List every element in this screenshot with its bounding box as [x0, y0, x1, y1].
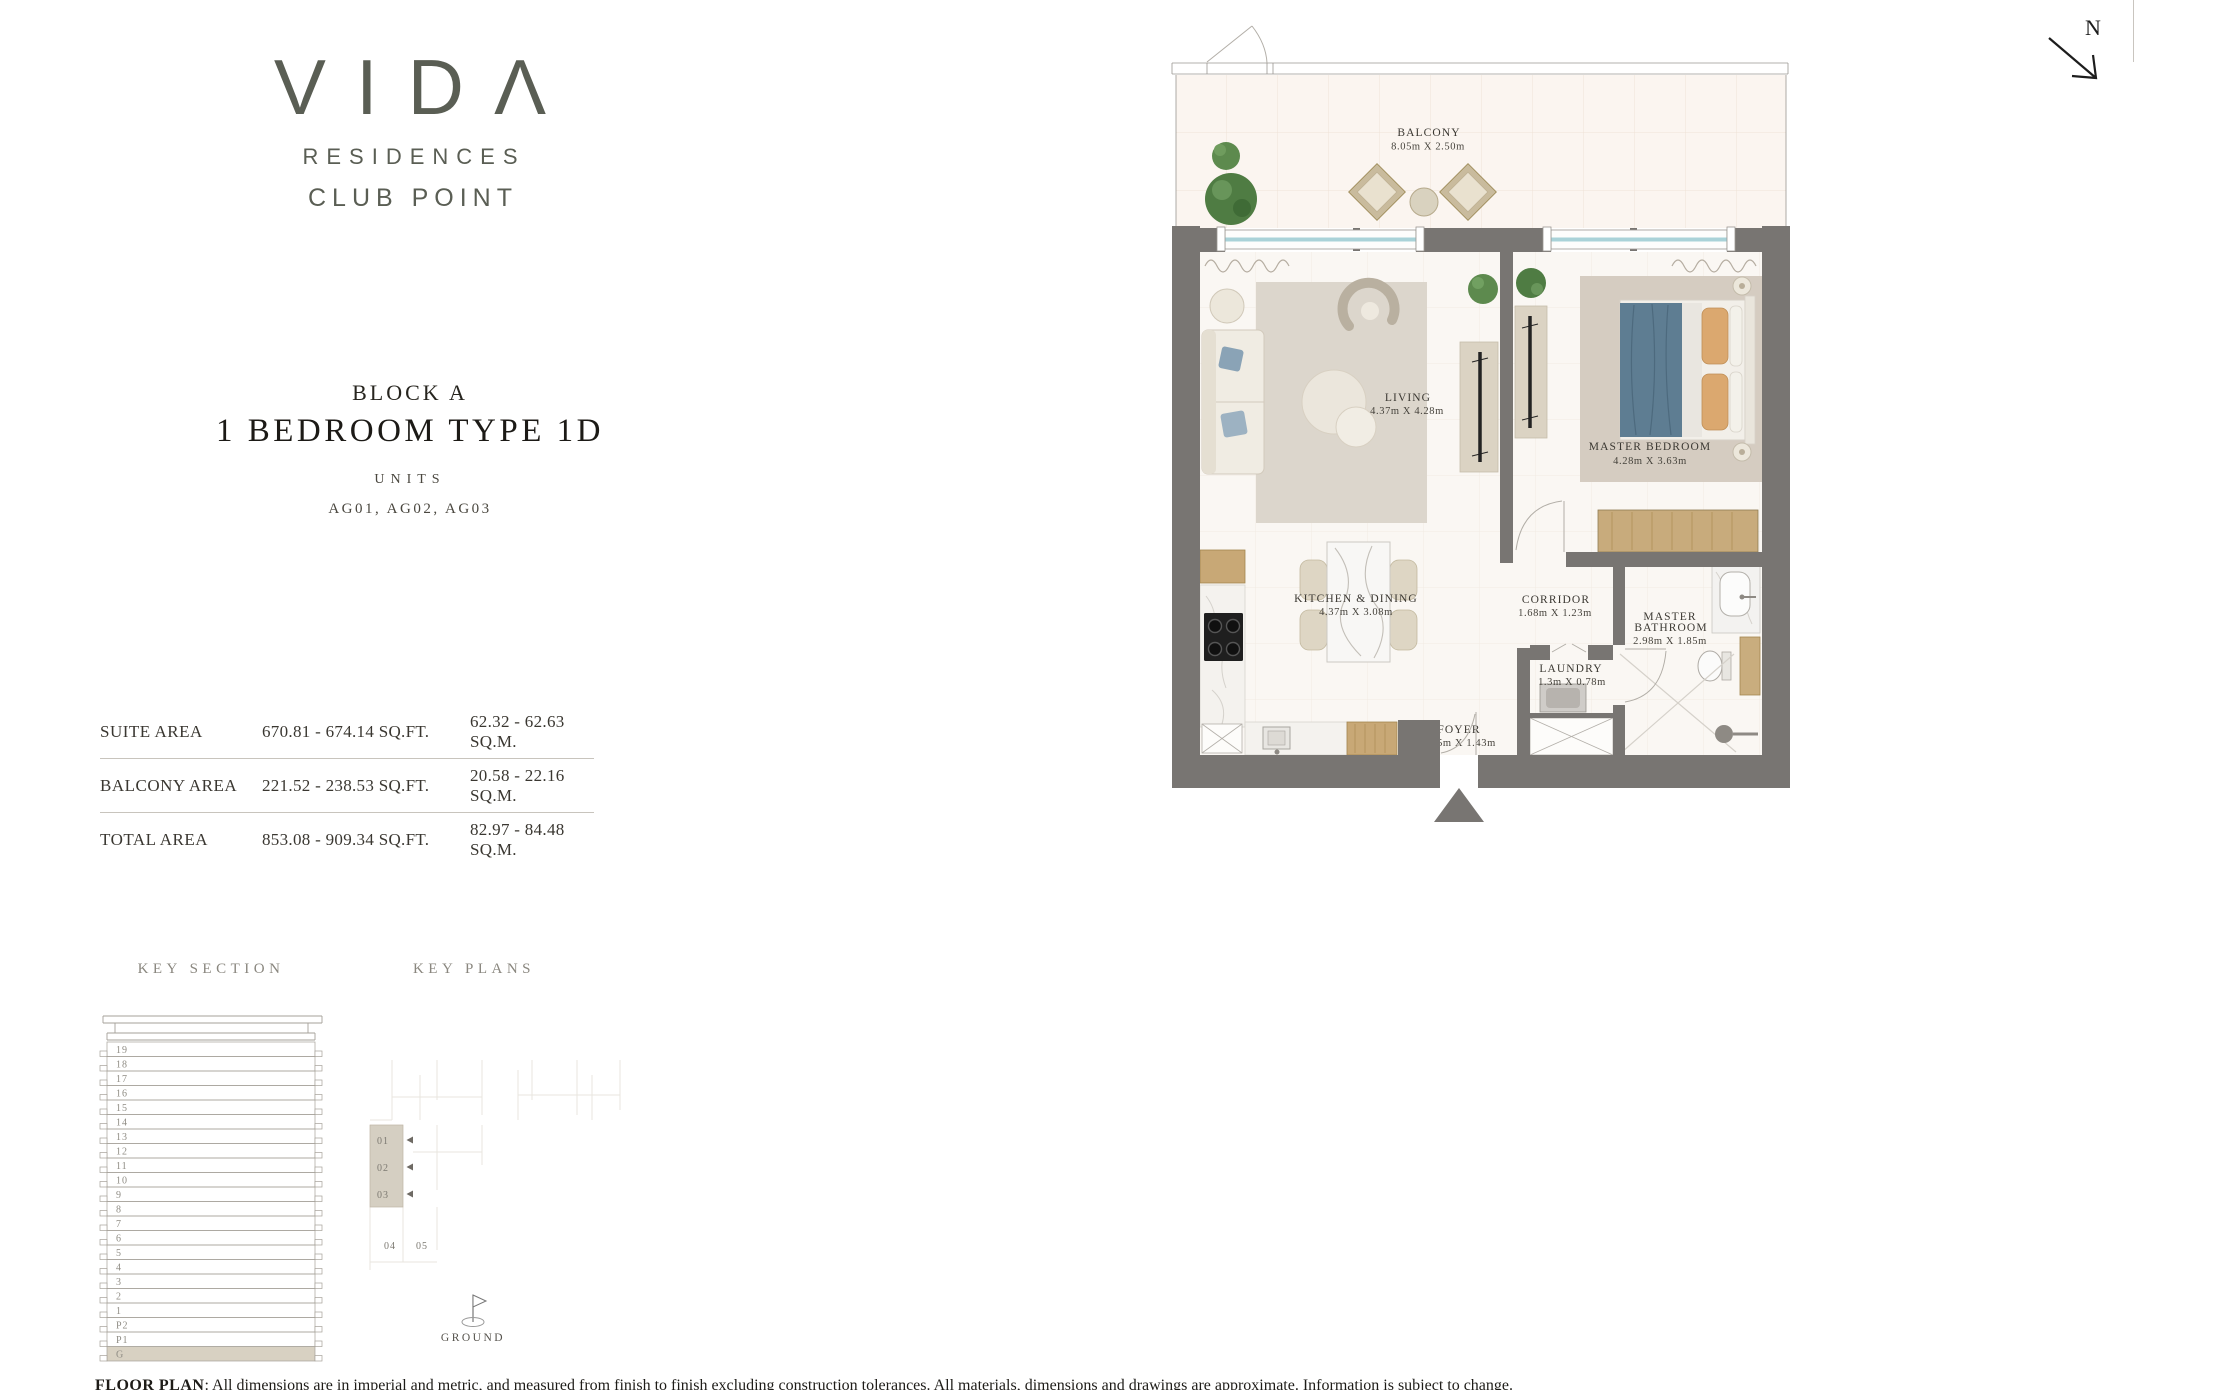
north-label: N [2085, 15, 2101, 40]
key-section-floor-marker [315, 1051, 322, 1057]
ground-flag-icon [462, 1295, 486, 1327]
room-dims-master-bathroom: 2.98m X 1.85m [1633, 636, 1707, 647]
key-section-floor-marker [315, 1211, 322, 1217]
key-section-floor-row [107, 1173, 315, 1188]
room-label-master-bedroom: MASTER BEDROOM [1589, 441, 1711, 453]
key-section-floor-label: 13 [116, 1132, 128, 1143]
key-section-floor-marker [100, 1182, 107, 1188]
key-section-floor-label: 18 [116, 1060, 128, 1071]
key-section-floor-marker [315, 1240, 322, 1246]
living-window [1217, 227, 1424, 251]
room-dims-master-bedroom: 4.28m X 3.63m [1613, 456, 1687, 467]
key-section-floor-marker [100, 1080, 107, 1086]
key-section-floor-label: 3 [116, 1277, 122, 1288]
room-label-foyer: FOYER [1437, 724, 1480, 736]
key-section-diagram: 19181716151413121110987654321P2P1G [100, 1016, 322, 1361]
room-label-balcony: BALCONY [1397, 127, 1460, 139]
key-section-floor-row [107, 1187, 315, 1202]
disclaimer-prefix: FLOOR PLAN [95, 1377, 204, 1390]
key-section-floor-marker [315, 1269, 322, 1275]
key-section-floor-row [107, 1158, 315, 1173]
bed [1620, 296, 1755, 444]
bathroom-wall-lower [1613, 705, 1625, 757]
key-section-floor-marker [100, 1196, 107, 1202]
key-plans-unit-05: 05 [416, 1241, 428, 1252]
kitchen-dining: KITCHEN & DINING 4.37m X 3.08m [1200, 542, 1418, 755]
storage-box [1530, 718, 1613, 755]
bed-throw [1620, 303, 1682, 437]
side-table [1210, 289, 1244, 323]
disclaimer: FLOOR PLAN: All dimensions are in imperi… [95, 1377, 2215, 1390]
accent-chair-cushion [1361, 302, 1379, 320]
bathroom-wall-upper [1613, 567, 1625, 645]
key-section-floor-row [107, 1303, 315, 1318]
key-section-floor-marker [315, 1109, 322, 1115]
key-section-floor-marker [315, 1341, 322, 1347]
bed-pillow [1702, 308, 1728, 364]
key-section-floor-marker [100, 1153, 107, 1159]
key-section-floor-row [107, 1216, 315, 1231]
key-section-floor-marker [315, 1312, 322, 1318]
key-section-floor-row [107, 1086, 315, 1101]
kitchen-cabinet [1200, 550, 1245, 583]
room-label-master-bathroom-2: BATHROOM [1634, 622, 1707, 634]
key-section-floor-marker [100, 1051, 107, 1057]
sofa-pillow [1220, 410, 1248, 438]
floor-plan-sheet: VIDΛ RESIDENCES CLUB POINT BLOCK A 1 BED… [0, 0, 2236, 1390]
key-section-floor-label: 8 [116, 1205, 122, 1216]
balcony-railing [1172, 63, 1788, 74]
room-dims-kitchen-dining: 4.37m X 3.08m [1319, 607, 1393, 618]
key-section-floor-row [107, 1129, 315, 1144]
balcony-table [1410, 188, 1438, 216]
key-section-floor-marker [100, 1138, 107, 1144]
north-indicator: N [2049, 0, 2134, 78]
room-label-kitchen-dining: KITCHEN & DINING [1294, 593, 1418, 605]
key-section-floor-row [107, 1347, 315, 1362]
key-section-floor-marker [315, 1095, 322, 1101]
key-section-floor-marker [100, 1312, 107, 1318]
key-section-floor-marker [100, 1109, 107, 1115]
key-section-floor-label: 10 [116, 1176, 128, 1187]
key-section-floor-marker [100, 1283, 107, 1289]
key-section-floor-label: 11 [116, 1161, 128, 1172]
key-section-floor-marker [315, 1356, 322, 1362]
foyer-wall-stub [1398, 720, 1440, 758]
room-dims-balcony: 8.05m X 2.50m [1391, 142, 1465, 153]
room-label-corridor: CORRIDOR [1522, 594, 1590, 606]
living-bedroom-wall [1500, 252, 1513, 563]
key-section-floor-marker [100, 1167, 107, 1173]
key-section-floor-marker [315, 1327, 322, 1333]
key-section-floor-row [107, 1100, 315, 1115]
shower-head [1715, 725, 1733, 743]
entry-arrow [1434, 788, 1484, 822]
key-plans-unit-02: 02 [377, 1163, 389, 1174]
floor-plan: BALCONY 8.05m X 2.50m [1172, 26, 1790, 822]
cooktop [1204, 613, 1243, 661]
key-section-floor-label: 17 [116, 1074, 128, 1085]
key-section-floor-row [107, 1057, 315, 1072]
room-dims-corridor: 1.68m X 1.23m [1518, 608, 1592, 619]
kitchen-appliance-box [1202, 724, 1242, 753]
tv-console-living [1460, 342, 1498, 472]
room-label-living: LIVING [1385, 392, 1431, 404]
key-section-floor-label: 7 [116, 1219, 122, 1230]
north-arrow-line [2049, 38, 2096, 78]
key-plans-unit-04: 04 [384, 1241, 396, 1252]
sofa [1202, 330, 1264, 474]
key-section-floor-row [107, 1202, 315, 1217]
key-section-floor-marker [100, 1298, 107, 1304]
room-dims-living: 4.37m X 4.28m [1370, 406, 1444, 417]
key-plans-unit-01: 01 [377, 1136, 389, 1147]
key-section-floor-row [107, 1115, 315, 1130]
headboard [1745, 296, 1755, 444]
key-section-floor-label: 6 [116, 1234, 122, 1245]
key-section-floor-marker [100, 1341, 107, 1347]
key-section-floor-label: 5 [116, 1248, 122, 1259]
sofa-pillow [1218, 346, 1244, 372]
key-section-floor-label: 1 [116, 1306, 122, 1317]
kitchen-counter-bottom [1245, 722, 1347, 755]
key-section-floor-marker [100, 1211, 107, 1217]
toilet [1698, 651, 1731, 681]
key-section-floor-marker [100, 1124, 107, 1130]
key-section-floor-marker [100, 1066, 107, 1072]
key-section-floor-label: G [116, 1350, 124, 1361]
bathroom-vanity [1712, 565, 1760, 633]
key-section-floor-marker [315, 1196, 322, 1202]
key-section-floor-marker [315, 1066, 322, 1072]
bedroom-window [1543, 227, 1735, 251]
bathroom-sink [1720, 572, 1750, 616]
key-section-floor-marker [100, 1095, 107, 1101]
key-section-floor-label: 19 [116, 1045, 128, 1056]
key-section-floor-row [107, 1274, 315, 1289]
key-section-floor-marker [100, 1240, 107, 1246]
key-section-floor-row [107, 1071, 315, 1086]
key-section-floor-marker [315, 1153, 322, 1159]
key-section-floor-marker [100, 1327, 107, 1333]
bed-sheet-fold [1682, 303, 1702, 437]
key-plans-unit-03: 03 [377, 1190, 389, 1201]
key-section-floors: 19181716151413121110987654321P2P1G [100, 1042, 322, 1361]
key-section-floor-row [107, 1144, 315, 1159]
room-label-laundry: LAUNDRY [1539, 663, 1602, 675]
key-section-floor-marker [315, 1167, 322, 1173]
key-section-floor-label: 2 [116, 1292, 122, 1303]
key-section-floor-marker [100, 1269, 107, 1275]
unit-pointer-icon [407, 1137, 414, 1144]
key-section-floor-marker [315, 1254, 322, 1260]
key-section-floor-marker [100, 1254, 107, 1260]
key-section-floor-marker [315, 1124, 322, 1130]
key-section-floor-marker [315, 1283, 322, 1289]
disclaimer-body: : All dimensions are in imperial and met… [204, 1377, 1513, 1390]
unit-pointer-icon [407, 1191, 414, 1198]
key-section-floor-label: 16 [116, 1089, 128, 1100]
key-plans-diagram: 01 02 03 04 05 GROUND [370, 1060, 620, 1344]
key-section-floor-row [107, 1289, 315, 1304]
bedroom-bottom-wall [1566, 552, 1762, 567]
key-section-floor-label: 9 [116, 1190, 122, 1201]
key-section-floor-label: P1 [116, 1335, 129, 1346]
key-section-floor-marker [315, 1298, 322, 1304]
key-plans-level-label: GROUND [441, 1332, 505, 1344]
tv-console-bedroom [1515, 306, 1547, 438]
key-section-floor-row [107, 1332, 315, 1347]
key-section-floor-row [107, 1042, 315, 1057]
dining-chair [1390, 610, 1417, 650]
laundry-wall-left [1517, 648, 1530, 755]
key-section-floor-row [107, 1245, 315, 1260]
key-section-floor-row [107, 1318, 315, 1333]
key-section-floor-marker [315, 1182, 322, 1188]
key-section-floor-marker [100, 1225, 107, 1231]
wardrobe [1598, 510, 1758, 552]
key-section-floor-marker [100, 1356, 107, 1362]
floor-plan-drawing: BALCONY 8.05m X 2.50m [0, 0, 2236, 1390]
key-section-floor-marker [315, 1225, 322, 1231]
balcony: BALCONY 8.05m X 2.50m [1172, 26, 1788, 228]
room-dims-laundry: 1.3m X 0.78m [1538, 677, 1606, 688]
key-section-floor-row [107, 1260, 315, 1275]
unit-pointer-icon [407, 1164, 414, 1171]
key-plans-outline [370, 1060, 620, 1270]
bed-pillow [1702, 374, 1728, 430]
key-section-floor-label: 14 [116, 1118, 128, 1129]
key-section-floor-row [107, 1231, 315, 1246]
key-section-floor-marker [315, 1138, 322, 1144]
key-section-floor-label: 15 [116, 1103, 128, 1114]
key-section-floor-label: P2 [116, 1321, 129, 1332]
key-section-floor-marker [315, 1080, 322, 1086]
balcony-gate-swing [1207, 26, 1267, 63]
key-section-floor-label: 12 [116, 1147, 128, 1158]
bathroom-shelf [1740, 637, 1760, 695]
key-section-floor-label: 4 [116, 1263, 122, 1274]
